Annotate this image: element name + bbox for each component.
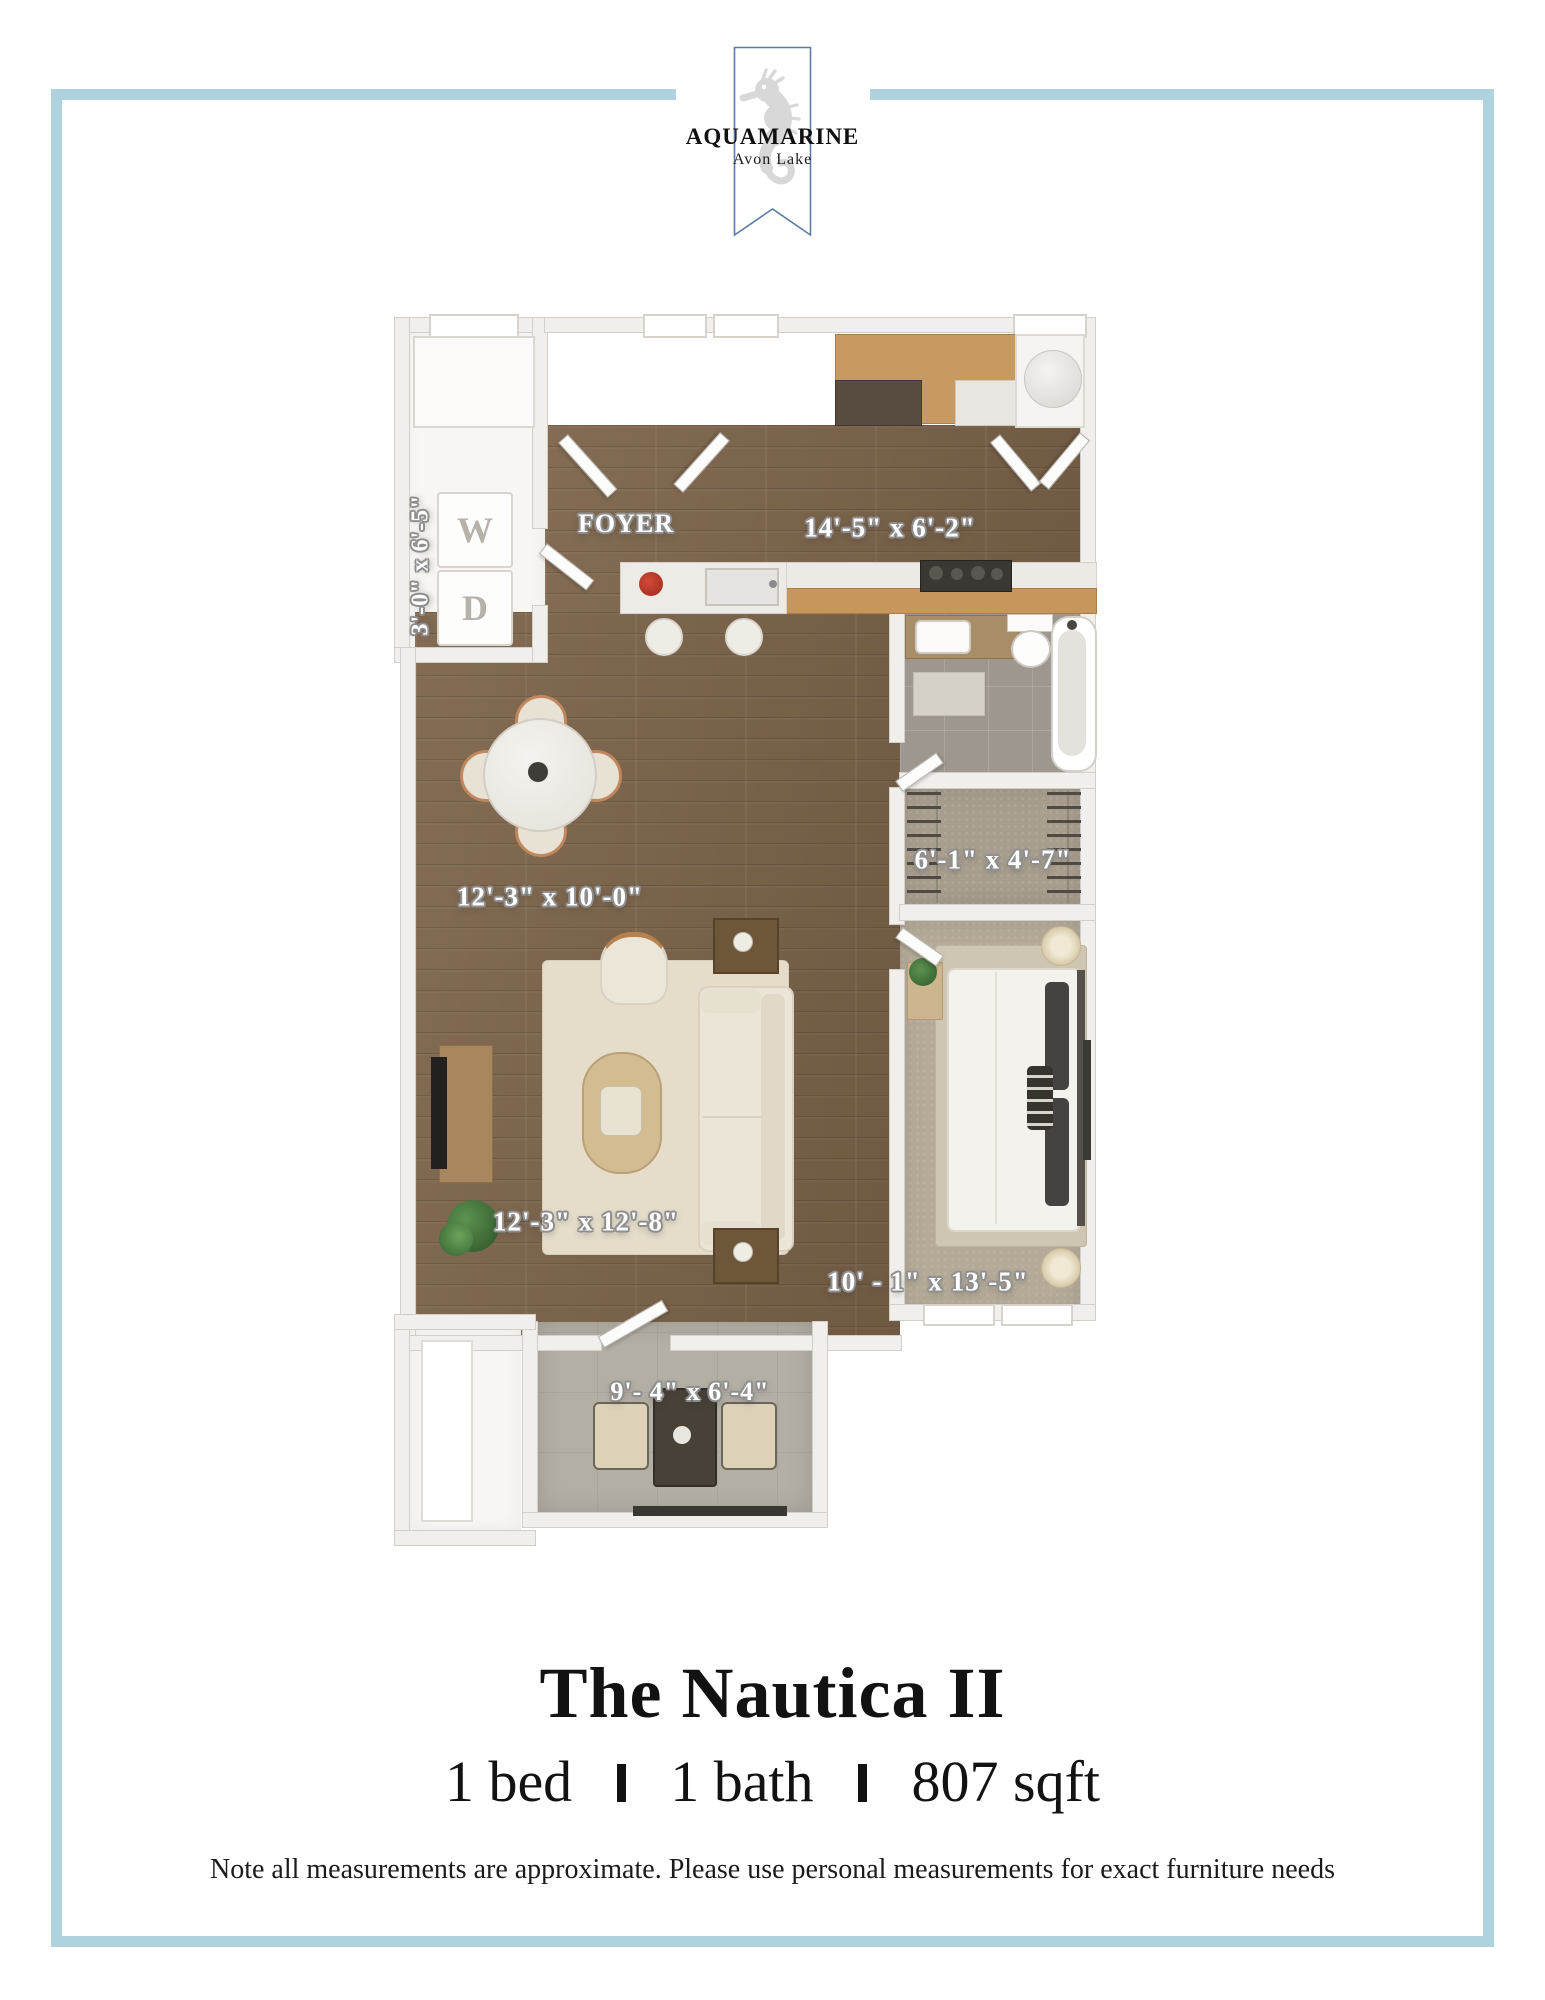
water-heater <box>1024 350 1082 408</box>
wall <box>890 612 904 742</box>
spec-sqft: 807 sqft <box>912 1749 1101 1814</box>
washer-unit: W <box>437 492 513 568</box>
wall <box>533 318 547 528</box>
foyer-label: FOYER <box>578 509 674 539</box>
wall <box>890 788 904 924</box>
kitchen-dimensions: 14'-5" x 6'-2" <box>804 513 975 544</box>
window <box>429 314 519 338</box>
sofa-armrest <box>701 989 761 1013</box>
stove-burner <box>951 568 963 580</box>
television <box>431 1057 447 1169</box>
fruit-bowl <box>639 572 663 596</box>
end-table-lamp <box>733 932 753 952</box>
patio-dimensions: 9'- 4" x 6'-4" <box>610 1377 769 1407</box>
wall <box>395 648 547 662</box>
plan-specs: 1 bed 1 bath 807 sqft <box>0 1748 1545 1815</box>
kitchen-marble-counter <box>955 380 1017 426</box>
spec-beds: 1 bed <box>445 1749 572 1814</box>
laundry-cabinet <box>413 336 535 428</box>
wall <box>900 773 1095 788</box>
stove-burner <box>929 566 943 580</box>
wall <box>395 1531 535 1545</box>
separator-bar <box>858 1764 867 1802</box>
dining-dimensions: 12'-3" x 10'-0" <box>457 882 643 913</box>
dryer-unit: D <box>437 570 513 646</box>
plan-title: The Nautica II <box>0 1652 1545 1735</box>
patio-chair <box>593 1402 649 1470</box>
bath-mat <box>913 672 985 716</box>
wall <box>395 1315 535 1329</box>
patio-dish <box>673 1426 691 1444</box>
wall <box>401 648 415 1350</box>
toilet-bowl <box>1011 630 1051 668</box>
wall <box>395 1315 409 1545</box>
kitchen-dark-cabinet <box>835 380 922 426</box>
wall <box>900 905 1095 920</box>
laundry-dimensions: 3'-0" x 6'-5" <box>408 495 435 636</box>
bedroom-window <box>923 1304 995 1326</box>
brand-name: AQUAMARINE <box>0 124 1545 150</box>
window <box>713 314 779 338</box>
patio-chair <box>721 1402 777 1470</box>
stove-burner <box>991 568 1003 580</box>
bedroom-window <box>1001 1304 1073 1326</box>
sink-faucet <box>769 580 777 588</box>
stove-burner <box>971 566 985 580</box>
candle-tray <box>1041 1248 1081 1288</box>
washer-letter: W <box>457 509 493 551</box>
brand-subname: Avon Lake <box>0 151 1545 169</box>
sofa-seat-divider <box>703 1116 761 1118</box>
floor-plan: W D 3'-0" x 6'-5" <box>395 310 1105 1560</box>
wall <box>671 1336 901 1350</box>
bar-stool <box>725 618 763 656</box>
bed-fold-line <box>995 972 997 1224</box>
table-centerpiece <box>528 762 548 782</box>
patio-door-track <box>633 1506 787 1516</box>
bathroom-sink <box>915 620 971 654</box>
wall <box>523 1322 537 1527</box>
kitchen-sink <box>705 568 779 606</box>
coffee-table-tray <box>600 1086 642 1136</box>
storage-shelf <box>421 1340 473 1522</box>
wall <box>533 606 547 662</box>
bar-stool <box>645 618 683 656</box>
armchair <box>600 932 668 1005</box>
living-dimensions: 12'-3" x 12'-8" <box>493 1207 679 1238</box>
bedroom-bench <box>1083 1040 1091 1160</box>
spec-baths: 1 bath <box>670 1749 813 1814</box>
bathtub-basin <box>1058 630 1086 756</box>
tv-console <box>439 1045 493 1183</box>
wall <box>813 1322 827 1527</box>
candle-tray <box>1041 926 1081 966</box>
end-table-lamp <box>733 1242 753 1262</box>
sofa-back-cushion <box>761 994 785 1240</box>
dryer-letter: D <box>462 587 488 629</box>
bedroom-dimensions: 10' - 1" x 13'-5" <box>827 1267 1028 1298</box>
accent-pillow <box>1027 1066 1053 1130</box>
measurement-note: Note all measurements are approximate. P… <box>0 1854 1545 1886</box>
window <box>643 314 707 338</box>
tub-faucet <box>1067 620 1077 630</box>
closet-dimensions: 6'-1" x 4'-7" <box>915 845 1072 876</box>
flyer-page: AQUAMARINE Avon Lake <box>0 0 1545 2000</box>
separator-bar <box>617 1764 626 1802</box>
floor-plant-leaf <box>439 1222 473 1256</box>
